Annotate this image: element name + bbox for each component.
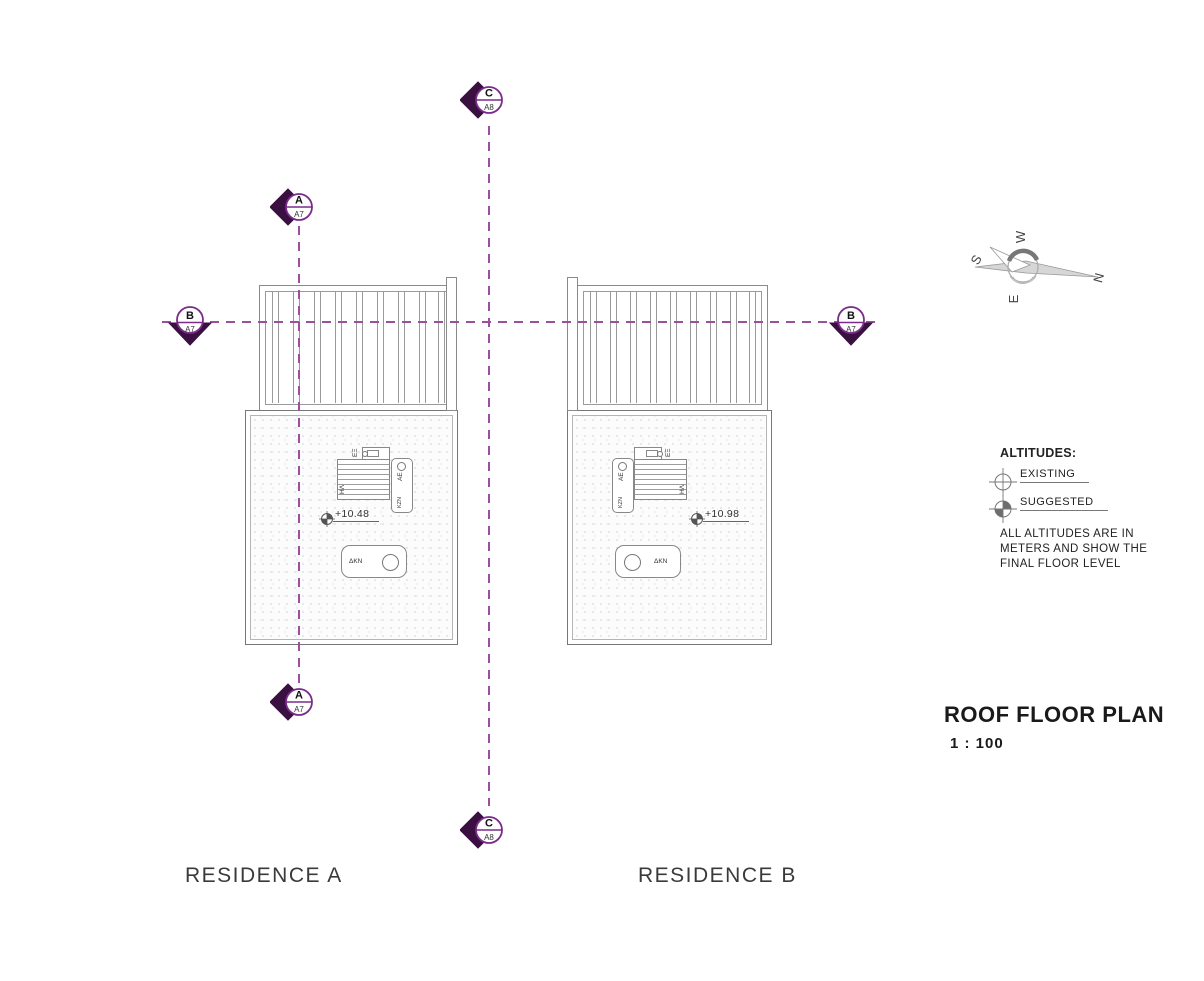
pergola-slat [670, 292, 677, 403]
pergola-slat [650, 292, 657, 403]
pergola-slat [419, 292, 426, 403]
solar-panel-b-label: ΗΛ [679, 485, 686, 494]
vent-fixture-b [634, 447, 662, 460]
vent-label-a: ΕΞ [352, 448, 359, 457]
pergola-slat [272, 292, 279, 403]
compass-north-label: N [1090, 271, 1107, 284]
marker-sheet: A8 [484, 833, 494, 842]
pergola-slat [690, 292, 697, 403]
altitude-value-b: +10.98 [703, 508, 749, 522]
pergola-slat [730, 292, 737, 403]
pergola-b [577, 285, 768, 412]
compass-east-label: E [1006, 294, 1021, 303]
residence-b-label: RESIDENCE B [638, 864, 797, 888]
existing-altitude-symbol [988, 467, 1018, 497]
chimney-a-flue [382, 554, 399, 571]
residence-a-label: RESIDENCE A [185, 864, 343, 888]
existing-label: EXISTING [1020, 468, 1089, 483]
pergola-slat [377, 292, 384, 403]
pergola-slat [749, 292, 756, 403]
altitude-value-a: +10.48 [333, 508, 379, 522]
pergola-slat [398, 292, 405, 403]
vent-fixture-a [362, 447, 390, 460]
legend-note: ALL ALTITUDES ARE IN METERS AND SHOW THE… [1000, 527, 1152, 573]
section-marker-a-bottom: A A7 [270, 677, 318, 727]
vent-fixture-a-detail [367, 450, 379, 457]
ae-label-b: ΑΕ [618, 472, 625, 481]
chimney-b: ΔΚΝ [615, 545, 681, 578]
marker-sheet: A7 [846, 325, 856, 334]
pergola-slat [438, 292, 445, 403]
pergola-slat [630, 292, 637, 403]
plan-scale: 1 : 100 [950, 735, 1004, 752]
pergola-slat [590, 292, 597, 403]
roof-floor-plan-sheet: ΗΛ ΕΞ ΑΕ ΚΖΝ +10.48 ΔΚΝ [0, 0, 1204, 981]
vent-fixture-a-knob [362, 451, 368, 457]
kzn-label-b: ΚΖΝ [618, 497, 624, 508]
section-line-a [298, 226, 300, 684]
pergola-slat [335, 292, 342, 403]
marker-letter: A [295, 690, 303, 702]
section-marker-b-right: B A7 [826, 302, 876, 348]
marker-sheet: A7 [294, 705, 304, 714]
solar-panel-a-label: ΗΛ [339, 485, 346, 494]
ae-unit-a-cap [397, 462, 406, 471]
pergola-slat [314, 292, 321, 403]
ae-label-a: ΑΕ [397, 472, 404, 481]
section-marker-b-left: B A7 [165, 302, 215, 348]
vent-label-b: ΕΞ [665, 448, 672, 457]
roof-b [567, 410, 772, 645]
marker-letter: B [186, 310, 194, 322]
marker-letter: C [485, 818, 493, 830]
pergola-slat [710, 292, 717, 403]
legend-title: ALTITUDES: [1000, 446, 1076, 460]
pergola-a-post [446, 277, 457, 411]
suggested-label: SUGGESTED [1020, 496, 1108, 511]
pergola-b-post [567, 277, 578, 411]
pergola-a [259, 285, 457, 412]
chimney-a-label: ΔΚΝ [349, 558, 362, 565]
section-line-b [162, 321, 878, 323]
pergola-slat [356, 292, 363, 403]
marker-sheet: A7 [185, 325, 195, 334]
marker-letter: C [485, 88, 493, 100]
suggested-altitude-symbol [988, 494, 1018, 524]
plan-title: ROOF FLOOR PLAN [944, 702, 1164, 728]
vent-fixture-b-knob [657, 451, 663, 457]
chimney-b-label: ΔΚΝ [654, 558, 667, 565]
section-marker-c-bottom: C A8 [460, 805, 508, 855]
marker-sheet: A8 [484, 103, 494, 112]
section-marker-c-top: C A8 [460, 75, 508, 125]
chimney-a: ΔΚΝ [341, 545, 407, 578]
ae-unit-b-cap [618, 462, 627, 471]
roof-a [245, 410, 458, 645]
chimney-b-flue [624, 554, 641, 571]
marker-letter: B [847, 310, 855, 322]
pergola-slat [610, 292, 617, 403]
kzn-label-a: ΚΖΝ [397, 497, 403, 508]
compass-south-label: S [967, 252, 984, 267]
section-line-c [488, 126, 490, 806]
section-marker-a-top: A A7 [270, 182, 318, 232]
marker-letter: A [295, 195, 303, 207]
marker-sheet: A7 [294, 210, 304, 219]
compass-west-label: W [1013, 230, 1028, 243]
compass-rose: W S E N [940, 215, 1120, 325]
